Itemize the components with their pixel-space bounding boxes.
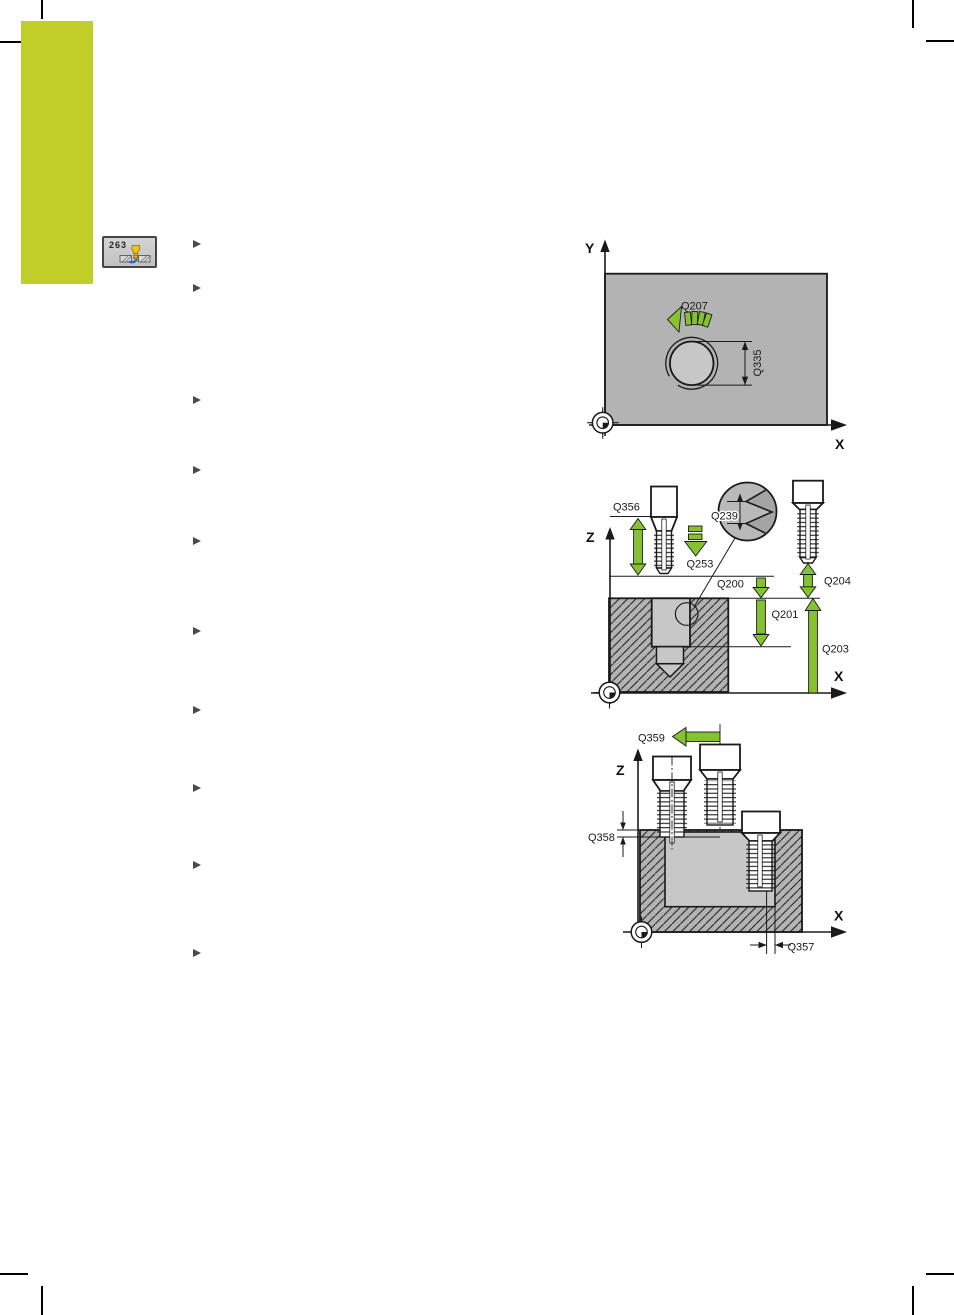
thread-mill-tool bbox=[651, 487, 677, 574]
list-bullet-icon bbox=[193, 284, 201, 292]
list-bullet-icon bbox=[193, 396, 201, 404]
list-bullet-icon bbox=[193, 537, 201, 545]
q203-arrow bbox=[805, 599, 821, 694]
crop-mark bbox=[926, 40, 954, 42]
q204-arrow bbox=[800, 564, 816, 598]
label-q359: Q359 bbox=[638, 733, 665, 745]
crop-mark bbox=[41, 1286, 43, 1315]
q358-dimension bbox=[620, 811, 626, 857]
q253-arrow bbox=[685, 526, 707, 556]
label-q239: Q239 bbox=[711, 511, 738, 523]
label-q204: Q204 bbox=[824, 576, 851, 588]
crop-mark bbox=[41, 0, 43, 19]
cycle-softkey: 263 bbox=[102, 236, 157, 268]
list-bullet-icon bbox=[193, 784, 201, 792]
tap-tool bbox=[793, 481, 823, 563]
diagram-thread-section-view: Z X Q356 Q253 bbox=[578, 470, 866, 708]
x-axis-arrow bbox=[831, 419, 847, 430]
axis-label-x: X bbox=[834, 908, 844, 924]
crop-mark bbox=[926, 1273, 954, 1275]
diagram-thread-countersink-front-view: Q359 Z X Q358 bbox=[578, 718, 868, 970]
axis-label-x: X bbox=[834, 668, 844, 684]
label-q207: Q207 bbox=[681, 301, 708, 313]
label-q201: Q201 bbox=[772, 609, 799, 621]
y-axis-arrow bbox=[600, 240, 609, 253]
crop-mark bbox=[0, 41, 21, 43]
workpiece-section bbox=[609, 598, 728, 692]
axis-label-x: X bbox=[835, 436, 845, 452]
label-q335: Q335 bbox=[752, 350, 764, 377]
diagram-thread-top-view: Y X Q335 Q207 bbox=[578, 233, 860, 459]
list-bullet-icon bbox=[193, 627, 201, 635]
hole-circle bbox=[670, 342, 714, 386]
workpiece-pocket bbox=[640, 830, 802, 932]
label-q253: Q253 bbox=[687, 559, 714, 571]
label-q203: Q203 bbox=[822, 644, 849, 656]
label-q200: Q200 bbox=[717, 579, 744, 591]
axis-label-z: Z bbox=[616, 762, 625, 778]
manual-page: 263 bbox=[0, 0, 954, 1315]
label-q356: Q356 bbox=[613, 502, 640, 514]
crop-mark bbox=[0, 1273, 28, 1275]
axis-label-z: Z bbox=[586, 529, 595, 545]
crop-mark bbox=[912, 1286, 914, 1315]
chapter-tab bbox=[21, 21, 93, 284]
countersink-tool-middle bbox=[700, 745, 740, 826]
list-bullet-icon bbox=[193, 949, 201, 957]
crop-mark bbox=[912, 0, 914, 28]
list-bullet-icon bbox=[193, 466, 201, 474]
label-q357: Q357 bbox=[788, 942, 815, 954]
axis-label-y: Y bbox=[585, 240, 595, 256]
q359-arrow bbox=[673, 728, 721, 747]
countersink-tool-right bbox=[742, 812, 780, 892]
workpiece-top-view bbox=[605, 274, 827, 425]
label-q358: Q358 bbox=[588, 832, 615, 844]
q356-arrow bbox=[630, 519, 646, 576]
list-bullet-icon bbox=[193, 706, 201, 714]
list-bullet-icon bbox=[193, 240, 201, 248]
list-bullet-icon bbox=[193, 861, 201, 869]
q201-arrow bbox=[753, 600, 769, 646]
q200-arrow bbox=[753, 578, 769, 598]
thread-mill-countersink-icon bbox=[119, 244, 151, 264]
